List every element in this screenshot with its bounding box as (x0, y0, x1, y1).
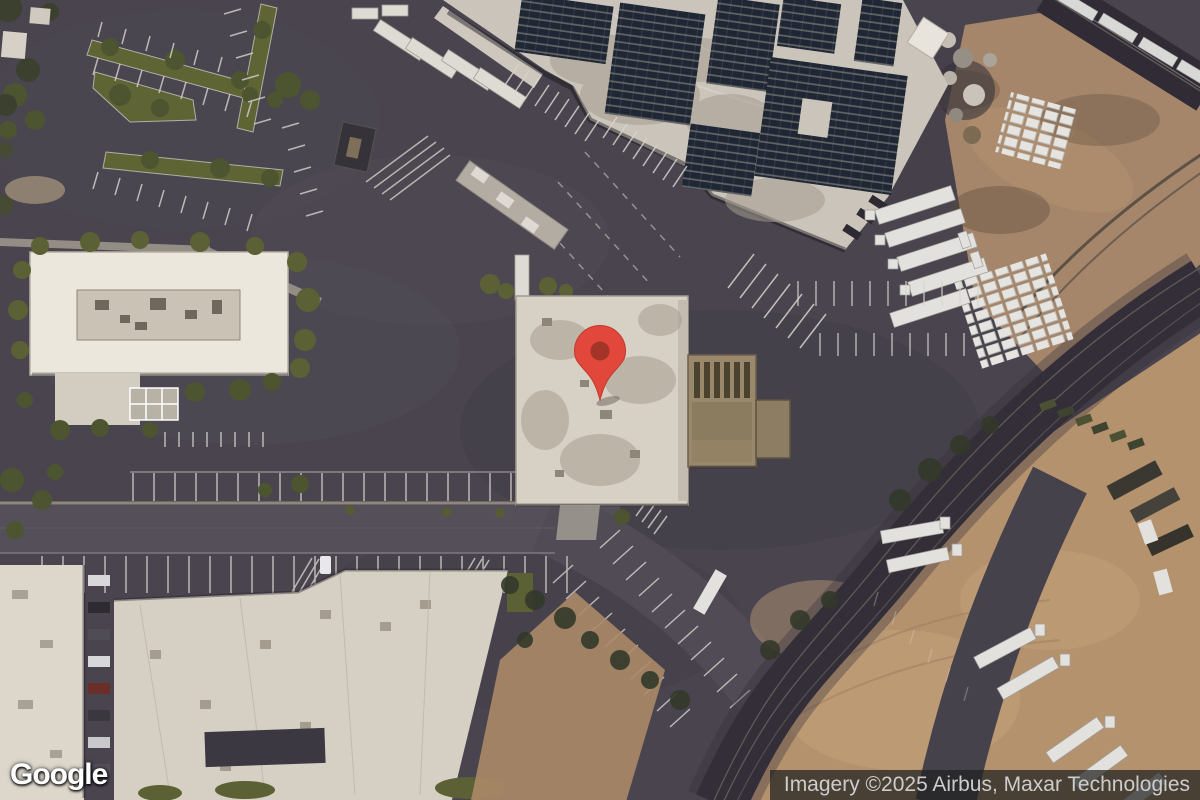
office-annex (55, 373, 140, 425)
asphalt-patch (204, 728, 325, 767)
pin-dot-icon (591, 342, 610, 361)
attribution-bar: Imagery ©2025 Airbus, Maxar Technologies (770, 770, 1200, 800)
satellite-canvas[interactable] (0, 0, 1200, 800)
rooftop-equipment (77, 290, 240, 340)
annex-wing (756, 400, 790, 458)
building-south-long (114, 570, 508, 800)
attribution-text: Imagery ©2025 Airbus, Maxar Technologies (784, 773, 1190, 797)
white-car (320, 556, 331, 574)
google-logo[interactable]: Google (10, 758, 107, 792)
map-viewport[interactable]: Google Imagery ©2025 Airbus, Maxar Techn… (0, 0, 1200, 800)
single-trailer (515, 255, 529, 300)
